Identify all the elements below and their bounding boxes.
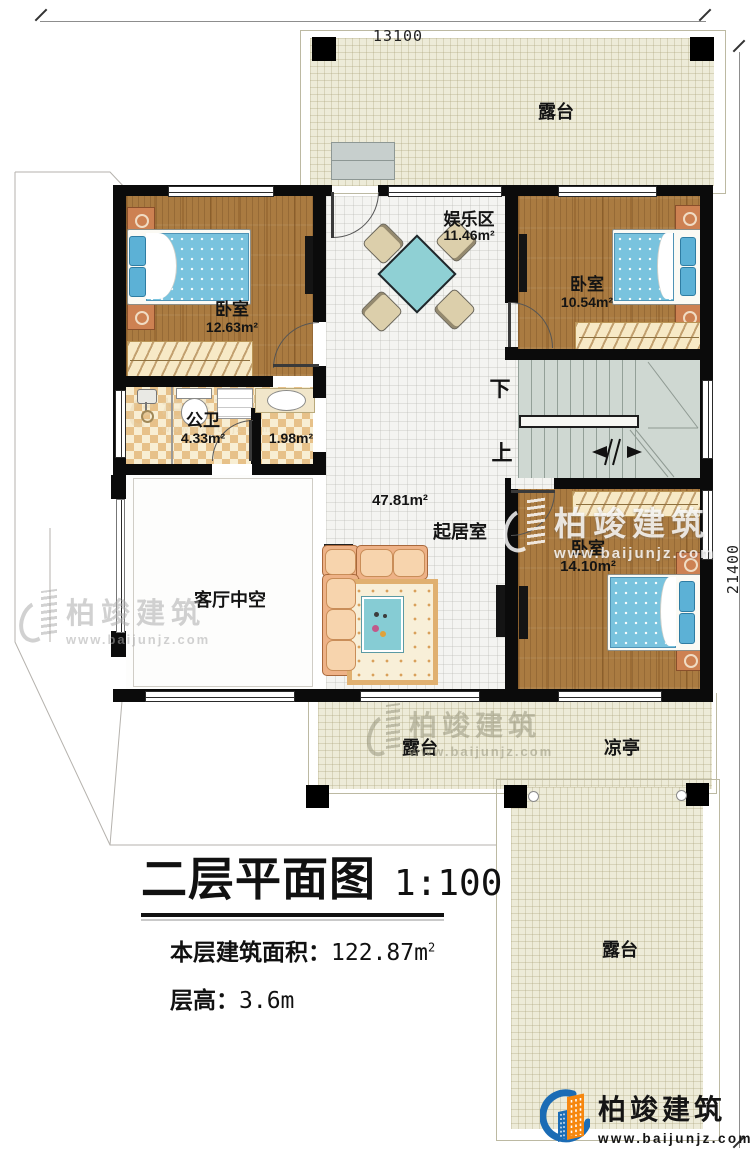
pillow [129,267,146,297]
bedroom-bottom-label: 卧室 [538,540,638,559]
column [504,785,527,808]
window [145,691,295,702]
column [686,783,709,806]
coffee-table [362,597,403,652]
nightstand [675,205,703,230]
tv [519,586,528,639]
wall-segment [313,366,326,398]
bedroom-right-area: 10.54m² [534,295,640,310]
wall-segment [505,347,518,360]
sofa-cushion [360,549,393,577]
bedroom-right-label: 卧室 [537,276,637,295]
nightstand [676,648,703,671]
entertainment-area: 11.46m² [420,228,518,243]
wall-segment [111,631,126,657]
void-floor [126,475,313,689]
floor-area-sup: 2 [428,940,435,954]
floor-plan-canvas: 柏竣建筑 www.baijunjz.com [0,0,750,1160]
bed-sheet [660,577,676,646]
wall-segment [313,452,326,475]
stairs-break-line [600,438,630,466]
wall-segment [113,376,273,387]
wall-segment [313,185,326,322]
wall-segment [554,478,713,489]
living-room-label: 起居室 [410,523,510,543]
sofa-cushion [326,609,356,640]
title-block: 二层平面图 1:100 本层建筑面积：122.87m2 层高：3.6m [141,843,502,1015]
column-ornament [676,790,687,801]
sofa-cushion [326,640,356,671]
shower-head-icon [137,389,157,404]
tv [519,234,527,292]
brand-logo-icon [540,1088,590,1144]
floor-height-value: 3.6m [239,988,294,1014]
wall-segment [113,464,212,475]
wardrobe [127,341,253,378]
window [702,380,713,459]
dimension-top-value: 13100 [360,27,436,45]
window [360,691,480,702]
brand-website: www.baijunjz.com [598,1131,750,1146]
stairs-up-label: 上 [490,442,514,465]
floor-area-label: 本层建筑面积： [170,939,331,965]
title-underline-shadow [141,919,444,921]
column [306,785,329,808]
stairs-down-label: 下 [488,378,512,401]
floor-height-label: 层高： [170,987,239,1013]
bathroom-label: 公卫 [167,412,239,431]
void-railing [116,499,125,633]
wall-segment [505,349,713,360]
door-leaf [508,302,511,347]
terrace-right-label: 露台 [584,941,656,961]
sofa-cushion [326,578,356,609]
door-leaf [249,420,252,461]
brand-logo-block: 柏竣建筑 www.baijunjz.com [540,1088,750,1146]
wardrobe [575,322,703,351]
dimension-right-value: 21400 [724,524,742,614]
bedroom-bottom-area: 14.10m² [534,559,642,576]
floor-area-value: 122.87m [331,940,428,966]
door-leaf [511,490,555,493]
wash-room-area: 1.98m² [256,431,326,446]
plan-scale: 1:100 [394,863,502,904]
sofa-cushion [325,549,356,575]
tv [496,585,505,637]
door-leaf [273,364,319,367]
stairs-rail [519,415,639,428]
title-underline [141,913,444,917]
door-leaf [331,192,334,238]
column-ornament [528,791,539,802]
sink [267,390,306,411]
column [690,37,714,61]
window [168,186,274,197]
void-label: 客厅中空 [176,591,284,611]
window [115,390,126,458]
window [558,691,662,702]
wall-segment [111,475,126,499]
brand-name: 柏竣建筑 [598,1088,750,1128]
living-room-area: 47.81m² [348,493,452,510]
terrace-steps [331,142,395,180]
wall-segment [505,185,518,303]
wardrobe [572,491,702,517]
wall-segment [505,478,511,489]
page-title: 二层平面图 [141,843,376,909]
sofa-cushion [393,549,425,577]
pillow [129,236,146,266]
pillow [679,613,695,644]
nightstand [676,552,703,575]
tv [305,236,313,294]
bedroom-left-label: 卧室 [182,301,282,320]
window [702,490,713,560]
pillow [679,581,695,612]
window [388,186,502,197]
window [558,186,657,197]
bed-sheet [657,233,673,299]
nightstand [127,304,155,330]
bathroom-area: 4.33m² [165,431,241,446]
pillow [680,267,696,296]
terrace-bottom-label: 露台 [384,739,456,759]
drain-icon [141,410,154,423]
column [312,37,336,61]
pillow [680,237,696,266]
pavilion-label: 凉亭 [586,739,658,759]
dimension-line-top [40,21,706,22]
bedroom-left-area: 12.63m² [180,320,284,335]
terrace-top-label: 露台 [520,103,592,123]
